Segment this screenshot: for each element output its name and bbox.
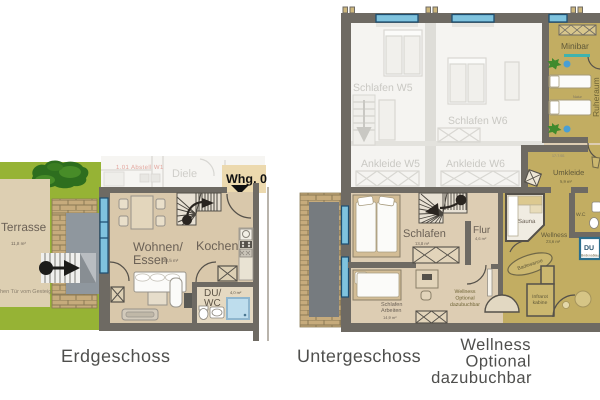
svg-text:5,9 m²: 5,9 m² xyxy=(560,179,572,184)
svg-text:Ankleide W6: Ankleide W6 xyxy=(446,158,505,170)
svg-text:DU: DU xyxy=(584,245,594,252)
svg-text:Minibar: Minibar xyxy=(561,41,589,51)
svg-text:Wohnen/: Wohnen/ xyxy=(133,240,183,254)
svg-text:Schlafen W6: Schlafen W6 xyxy=(448,115,508,127)
svg-text:hen Tür vom Gesteig: hen Tür vom Gesteig xyxy=(0,289,51,295)
svg-text:Arbeiten: Arbeiten xyxy=(381,308,402,314)
svg-text:Untergeschoss: Untergeschoss xyxy=(297,346,421,366)
svg-text:Wellness: Wellness xyxy=(460,336,531,354)
svg-text:Kochen: Kochen xyxy=(196,239,238,253)
svg-text:Whg. 0: Whg. 0 xyxy=(226,172,267,186)
svg-text:11,8 m²: 11,8 m² xyxy=(11,241,26,246)
svg-text:23,6 m²: 23,6 m² xyxy=(546,239,561,244)
svg-text:17-7-55: 17-7-55 xyxy=(552,154,564,158)
svg-text:W.C: W.C xyxy=(576,212,586,218)
svg-text:Sauna: Sauna xyxy=(518,218,536,225)
svg-text:Optional: Optional xyxy=(455,296,474,302)
svg-text:Schlafen: Schlafen xyxy=(403,228,446,240)
svg-text:Schlafen W5: Schlafen W5 xyxy=(353,82,413,94)
svg-text:14,9 m²: 14,9 m² xyxy=(383,315,397,320)
svg-text:Terrasse: Terrasse xyxy=(1,220,47,234)
svg-text:Bodenablauf: Bodenablauf xyxy=(581,254,600,258)
svg-text:Flur: Flur xyxy=(473,225,491,236)
svg-text:Optional: Optional xyxy=(466,353,531,371)
svg-text:28,5 m²: 28,5 m² xyxy=(163,258,179,263)
svg-text:4,0 m²: 4,0 m² xyxy=(230,290,242,295)
svg-text:Diele: Diele xyxy=(172,168,197,180)
svg-text:Erdgeschoss: Erdgeschoss xyxy=(61,346,171,366)
svg-text:1.01 Abstell W1: 1.01 Abstell W1 xyxy=(116,164,164,171)
svg-text:Wellness: Wellness xyxy=(455,289,476,295)
svg-text:Wellness: Wellness xyxy=(541,232,568,239)
svg-text:Ruheraum: Ruheraum xyxy=(591,77,600,117)
svg-text:dazubuchbar: dazubuchbar xyxy=(450,302,480,308)
svg-text:Natur: Natur xyxy=(573,95,583,99)
svg-text:dazubuchbar: dazubuchbar xyxy=(431,369,532,387)
svg-text:Ankleide W5: Ankleide W5 xyxy=(361,158,420,170)
svg-text:4,6 m²: 4,6 m² xyxy=(475,236,487,241)
svg-text:kabine: kabine xyxy=(533,300,548,306)
svg-text:Umkleide: Umkleide xyxy=(553,168,584,177)
svg-text:13,8 m²: 13,8 m² xyxy=(415,241,430,246)
